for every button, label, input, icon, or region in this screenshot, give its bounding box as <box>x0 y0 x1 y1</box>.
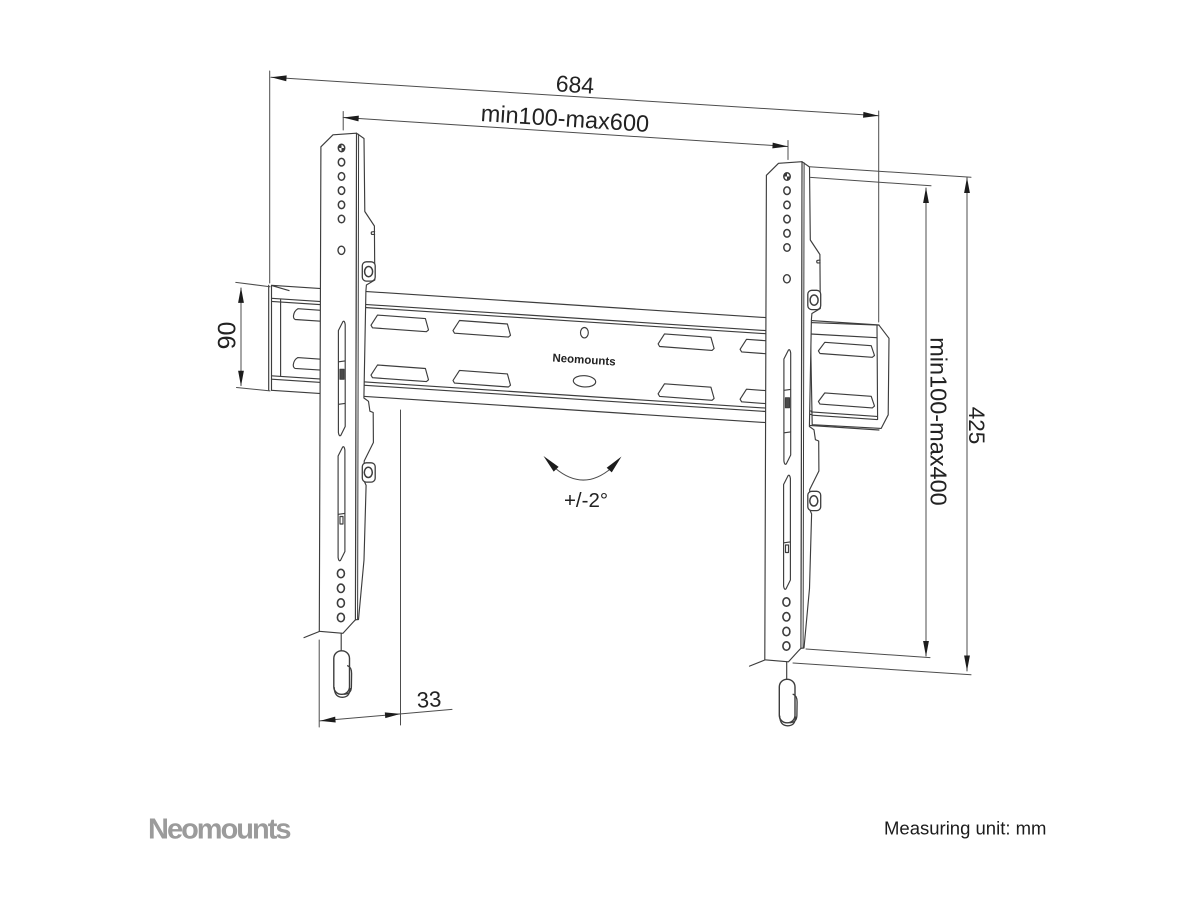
svg-text:min100-max400: min100-max400 <box>926 337 952 506</box>
svg-text:425: 425 <box>964 407 989 445</box>
svg-text:Neomounts: Neomounts <box>552 352 616 368</box>
svg-text:33: 33 <box>416 686 442 712</box>
svg-text:min100-max600: min100-max600 <box>480 100 650 137</box>
svg-text:+/-2°: +/-2° <box>564 489 608 512</box>
svg-text:684: 684 <box>555 70 595 98</box>
svg-text:90: 90 <box>213 322 241 350</box>
svg-text:Measuring unit: mm: Measuring unit: mm <box>884 818 1046 839</box>
svg-text:Neomounts: Neomounts <box>148 814 290 846</box>
